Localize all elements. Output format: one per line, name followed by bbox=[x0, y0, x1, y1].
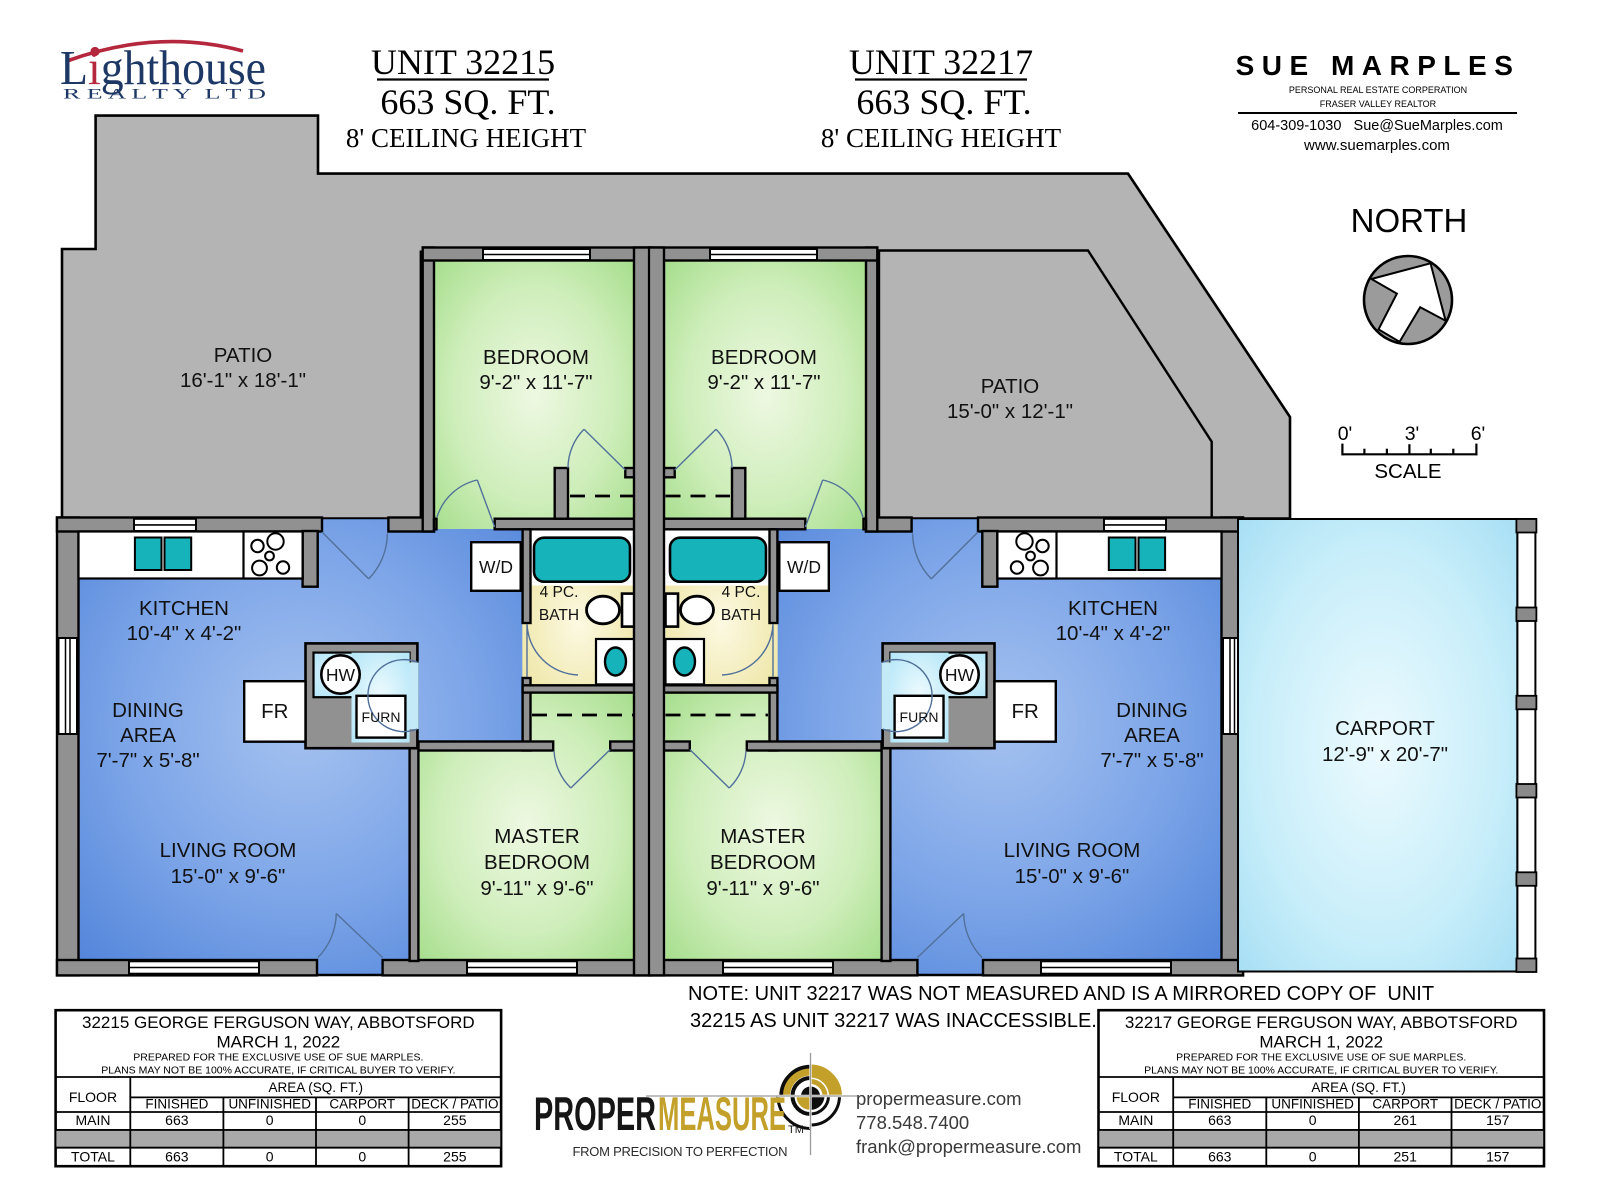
svg-text:NOTE: UNIT 32217 WAS NOT MEASU: NOTE: UNIT 32217 WAS NOT MEASURED AND IS… bbox=[688, 983, 1434, 1005]
svg-text:3': 3' bbox=[1405, 423, 1420, 445]
svg-text:FURN: FURN bbox=[900, 709, 939, 725]
svg-text:0': 0' bbox=[1338, 423, 1353, 445]
svg-text:PROPER: PROPER bbox=[534, 1087, 656, 1140]
svg-text:TM: TM bbox=[788, 1124, 804, 1136]
svg-text:0: 0 bbox=[1309, 1112, 1317, 1128]
svg-text:0: 0 bbox=[1309, 1149, 1317, 1165]
svg-text:FLOOR: FLOOR bbox=[69, 1089, 117, 1105]
svg-text:MASTERBEDROOM9'-11" x 9'-6": MASTERBEDROOM9'-11" x 9'-6" bbox=[480, 825, 593, 900]
svg-text:255: 255 bbox=[443, 1112, 467, 1128]
svg-text:PLANS MAY NOT BE 100% ACCURATE: PLANS MAY NOT BE 100% ACCURATE, IF CRITI… bbox=[1144, 1065, 1498, 1077]
svg-text:DECK / PATIO: DECK / PATIO bbox=[1454, 1097, 1541, 1112]
svg-text:8' CEILING HEIGHT: 8' CEILING HEIGHT bbox=[821, 123, 1062, 153]
svg-text:NORTH: NORTH bbox=[1351, 202, 1468, 239]
svg-text:AREA (SQ. FT.): AREA (SQ. FT.) bbox=[1311, 1080, 1406, 1095]
svg-text:frank@propermeasure.com: frank@propermeasure.com bbox=[856, 1136, 1081, 1157]
svg-text:DECK / PATIO: DECK / PATIO bbox=[411, 1097, 498, 1112]
svg-text:MAIN: MAIN bbox=[1118, 1112, 1153, 1128]
svg-text:UNFINISHED: UNFINISHED bbox=[1271, 1097, 1354, 1112]
svg-text:FLOOR: FLOOR bbox=[1112, 1089, 1160, 1105]
svg-text:FR: FR bbox=[261, 700, 288, 723]
svg-text:MEASURE: MEASURE bbox=[658, 1087, 786, 1140]
svg-text:PERSONAL REAL ESTATE CORPERATI: PERSONAL REAL ESTATE CORPERATION bbox=[1289, 85, 1467, 95]
svg-text:32217 GEORGE FERGUSON WAY, ABB: 32217 GEORGE FERGUSON WAY, ABBOTSFORD bbox=[1125, 1013, 1518, 1032]
svg-text:PLANS MAY NOT BE 100% ACCURATE: PLANS MAY NOT BE 100% ACCURATE, IF CRITI… bbox=[101, 1065, 455, 1077]
svg-text:FRASER VALLEY REALTOR: FRASER VALLEY REALTOR bbox=[1320, 99, 1437, 109]
svg-text:157: 157 bbox=[1486, 1149, 1510, 1165]
svg-text:157: 157 bbox=[1486, 1112, 1510, 1128]
svg-text:FINISHED: FINISHED bbox=[1188, 1097, 1251, 1112]
svg-text:778.548.7400: 778.548.7400 bbox=[856, 1112, 969, 1133]
svg-text:0: 0 bbox=[266, 1112, 274, 1128]
svg-text:663: 663 bbox=[1208, 1112, 1232, 1128]
svg-text:FR: FR bbox=[1012, 700, 1039, 723]
svg-text:www.suemarples.com: www.suemarples.com bbox=[1303, 137, 1450, 154]
svg-text:PREPARED FOR THE EXCLUSIVE USE: PREPARED FOR THE EXCLUSIVE USE OF SUE MA… bbox=[133, 1052, 423, 1064]
svg-text:TOTAL: TOTAL bbox=[71, 1149, 115, 1165]
svg-text:W/D: W/D bbox=[479, 557, 513, 577]
svg-text:SUE MARPLES: SUE MARPLES bbox=[1236, 50, 1521, 81]
svg-text:0: 0 bbox=[358, 1149, 366, 1165]
svg-text:FURN: FURN bbox=[362, 709, 401, 725]
svg-text:663: 663 bbox=[1208, 1149, 1232, 1165]
svg-text:MASTERBEDROOM9'-11" x 9'-6": MASTERBEDROOM9'-11" x 9'-6" bbox=[706, 825, 819, 900]
svg-text:MARCH 1, 2022: MARCH 1, 2022 bbox=[216, 1033, 340, 1052]
svg-text:251: 251 bbox=[1394, 1149, 1418, 1165]
svg-text:663 SQ. FT.: 663 SQ. FT. bbox=[380, 82, 555, 122]
svg-text:UNFINISHED: UNFINISHED bbox=[228, 1097, 311, 1112]
svg-text:FROM PRECISION TO PERFECTION: FROM PRECISION TO PERFECTION bbox=[573, 1144, 790, 1159]
svg-text:FINISHED: FINISHED bbox=[145, 1097, 208, 1112]
svg-text:UNIT 32215: UNIT 32215 bbox=[371, 42, 555, 82]
svg-text:0: 0 bbox=[358, 1112, 366, 1128]
svg-text:propermeasure.com: propermeasure.com bbox=[856, 1088, 1022, 1109]
svg-text:MAIN: MAIN bbox=[75, 1112, 110, 1128]
svg-text:CARPORT: CARPORT bbox=[329, 1097, 395, 1112]
svg-text:HW: HW bbox=[945, 665, 975, 685]
svg-text:663: 663 bbox=[165, 1112, 189, 1128]
svg-text:PREPARED FOR THE EXCLUSIVE USE: PREPARED FOR THE EXCLUSIVE USE OF SUE MA… bbox=[1176, 1052, 1466, 1064]
svg-text:CARPORT: CARPORT bbox=[1372, 1097, 1438, 1112]
svg-text:TOTAL: TOTAL bbox=[1114, 1149, 1158, 1165]
svg-text:663: 663 bbox=[165, 1149, 189, 1165]
svg-text:663 SQ. FT.: 663 SQ. FT. bbox=[856, 82, 1031, 122]
svg-text:255: 255 bbox=[443, 1149, 467, 1165]
svg-text:261: 261 bbox=[1394, 1112, 1418, 1128]
svg-text:R E A L T Y L T D: R E A L T Y L T D bbox=[63, 87, 266, 103]
svg-text:MARCH 1, 2022: MARCH 1, 2022 bbox=[1259, 1033, 1383, 1052]
svg-text:HW: HW bbox=[326, 665, 356, 685]
svg-text:8' CEILING HEIGHT: 8' CEILING HEIGHT bbox=[346, 123, 587, 153]
svg-text:AREA (SQ. FT.): AREA (SQ. FT.) bbox=[268, 1080, 363, 1095]
svg-text:0: 0 bbox=[266, 1149, 274, 1165]
svg-text:UNIT 32217: UNIT 32217 bbox=[849, 42, 1033, 82]
svg-text:604-309-1030 Sue@SueMarples.: 604-309-1030 Sue@SueMarples.com bbox=[1251, 118, 1503, 134]
svg-text:32215 GEORGE FERGUSON WAY, ABB: 32215 GEORGE FERGUSON WAY, ABBOTSFORD bbox=[82, 1013, 475, 1032]
svg-text:SCALE: SCALE bbox=[1374, 460, 1441, 483]
svg-text:W/D: W/D bbox=[787, 557, 821, 577]
svg-text:32215 AS UNIT 32217 WAS INACCE: 32215 AS UNIT 32217 WAS INACCESSIBLE. bbox=[690, 1010, 1097, 1032]
svg-text:6': 6' bbox=[1471, 423, 1486, 445]
